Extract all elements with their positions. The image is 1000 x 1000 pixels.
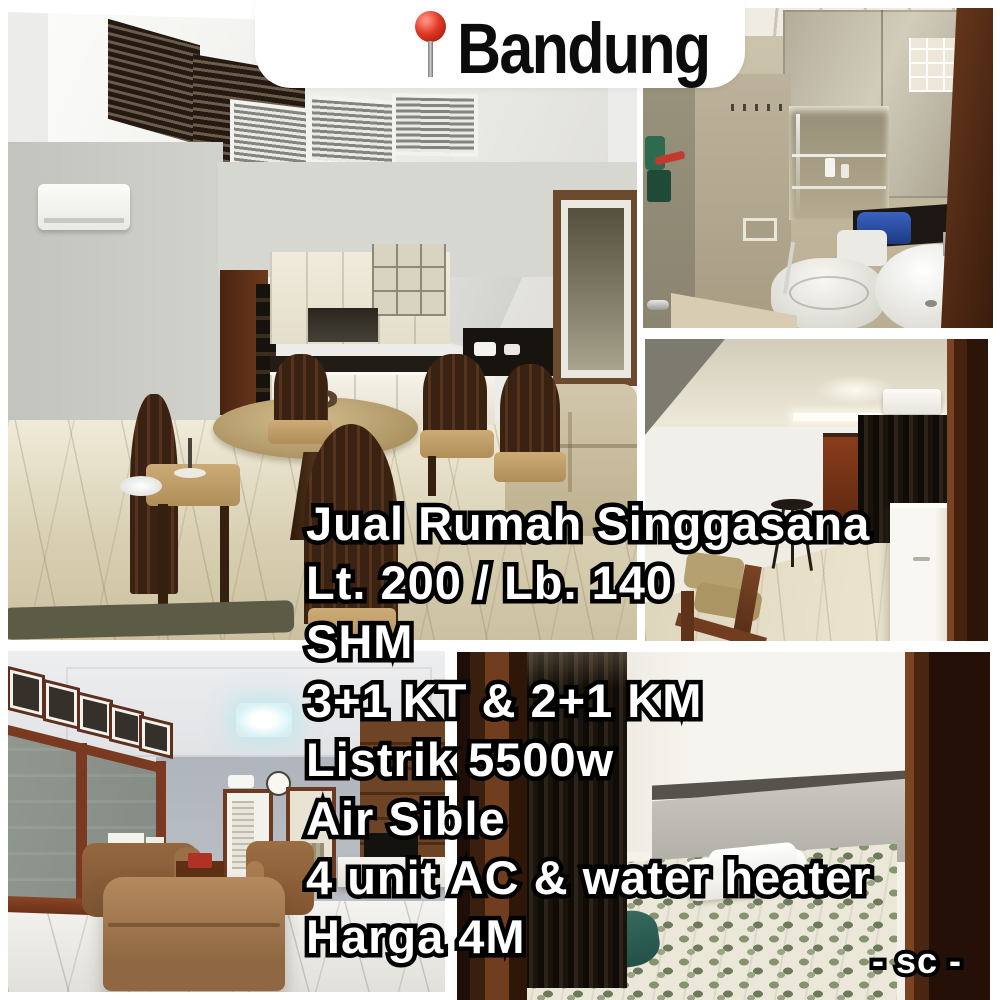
- toiletry-bottle: [841, 164, 849, 178]
- ac-vent-line: [44, 218, 124, 223]
- shower-niche: [789, 106, 889, 220]
- chair-back: [500, 364, 560, 464]
- property-listing-collage: Bandung Jual Rumah Singgasana Lt. 200 / …: [0, 0, 1000, 1000]
- sofa-cushion-seam: [568, 412, 572, 492]
- sofa-main: [103, 877, 285, 991]
- chair-cushion: [268, 420, 332, 444]
- kitchen-appliance: [474, 342, 496, 356]
- glass-shelf: [792, 186, 886, 189]
- chair-leg: [428, 456, 436, 496]
- listing-line-title: Jual Rumah Singgasana: [306, 494, 872, 553]
- glass-shelf: [792, 154, 886, 157]
- chair-leg: [220, 506, 229, 614]
- toilet-seat-line: [789, 276, 869, 310]
- range-hood: [308, 308, 378, 342]
- robot-vacuum: [120, 476, 162, 496]
- floor-lamp-base: [174, 468, 206, 478]
- skylight-louver-metal-2: [308, 95, 396, 169]
- door-frame-right: [947, 339, 988, 641]
- clerestory-window: [142, 718, 170, 755]
- sink-drain: [925, 300, 937, 307]
- green-cloth: [647, 170, 671, 202]
- kitchen-kettle: [504, 344, 520, 355]
- clerestory-window: [80, 695, 110, 736]
- window-glass: [568, 208, 624, 370]
- listing-line-water: Air Sible: [306, 789, 872, 848]
- listing-line-electricity: Listrik 5500w: [306, 730, 872, 789]
- toiletry-bottle: [825, 158, 835, 177]
- clerestory-window: [10, 669, 42, 715]
- cabinet-handle: [913, 557, 930, 561]
- green-squeegee: [645, 136, 665, 170]
- glass-cabinet: [372, 244, 446, 316]
- listing-line-rooms: 3+1 KT & 2+1 KM: [306, 671, 872, 730]
- pushpin-needle: [428, 41, 433, 77]
- ac-unit: [883, 389, 941, 414]
- listing-line-ac: 4 unit AC & water heater: [306, 848, 872, 907]
- chair-cushion: [494, 452, 566, 482]
- chair-cushion: [420, 430, 494, 458]
- ac-unit: [38, 184, 130, 230]
- white-cabinet: [890, 503, 954, 641]
- chair-back: [274, 354, 328, 428]
- listing-line-area: Lt. 200 / Lb. 140: [306, 553, 872, 612]
- clerestory-window: [46, 682, 77, 726]
- location-label: Bandung: [457, 12, 710, 88]
- chair-back: [423, 354, 487, 438]
- round-pushpin-icon: [415, 11, 446, 42]
- clerestory-window: [112, 707, 141, 746]
- sofa-main-seam: [108, 923, 280, 927]
- ceiling-light: [236, 703, 292, 737]
- shower-rail: [796, 114, 800, 214]
- door-handle: [647, 300, 669, 310]
- red-tray: [188, 853, 212, 868]
- tissue-holder: [743, 218, 777, 241]
- watermark: - sc -: [872, 941, 962, 981]
- location-banner: Bandung: [255, 0, 745, 88]
- listing-details: Jual Rumah Singgasana Lt. 200 / Lb. 140 …: [306, 494, 872, 966]
- listing-line-price: Harga 4M: [306, 907, 872, 966]
- hallway-ac-unit: [228, 775, 254, 788]
- skylight-louver-metal-3: [392, 93, 478, 157]
- towel-hooks: [731, 104, 789, 111]
- listing-line-certificate: SHM: [306, 612, 872, 671]
